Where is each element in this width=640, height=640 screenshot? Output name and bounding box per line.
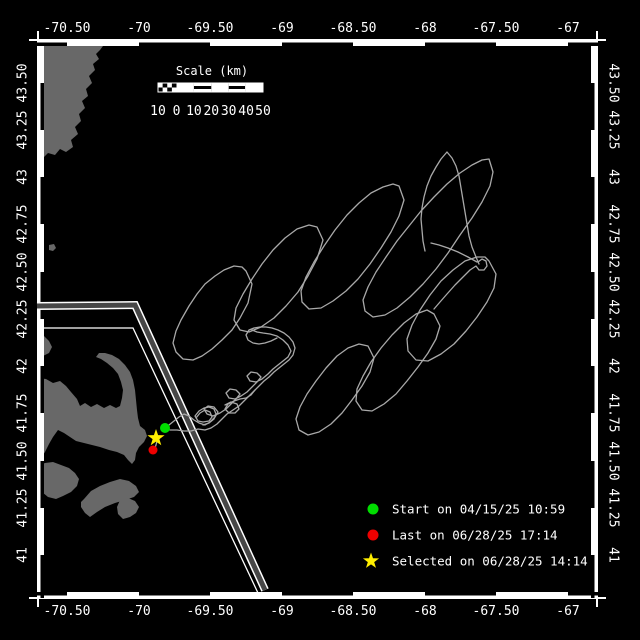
track-line (407, 257, 496, 361)
lat-tick-label: 42.75 (16, 204, 31, 243)
lat-tick-label: 43.50 (16, 63, 31, 102)
lat-tick-label: 42.75 (606, 204, 621, 243)
lat-tick-label: 43.50 (606, 63, 621, 102)
track-line (421, 152, 479, 264)
lat-tick-label: 42 (16, 358, 31, 374)
lon-tick-label: -70.50 (44, 21, 91, 36)
lon-tick-label: -70 (127, 604, 150, 619)
scale-bar-checker-cell (172, 88, 177, 93)
lon-tick-label: -68 (413, 21, 436, 36)
land-polygon (37, 46, 103, 160)
last-point-marker[interactable] (149, 446, 158, 455)
zebra-segment (282, 43, 353, 47)
lat-tick-label: 43.25 (606, 110, 621, 149)
zebra-segment (425, 43, 496, 47)
zebra-segment (41, 177, 45, 224)
lon-tick-label: -69 (270, 604, 293, 619)
lat-tick-label: 41.25 (16, 488, 31, 527)
lat-tick-label: 42.25 (606, 299, 621, 338)
lon-tick-label: -69 (270, 21, 293, 36)
zebra-segment (591, 177, 595, 224)
scale-bar-solid-segment (245, 83, 263, 92)
zebra-segment (591, 555, 595, 598)
zebra-segment (41, 83, 45, 130)
legend-marker-circle (368, 504, 379, 515)
lon-tick-label: -68.50 (330, 21, 377, 36)
lon-tick-label: -70 (127, 21, 150, 36)
map-graphics (0, 0, 640, 640)
lat-tick-label: 43 (16, 169, 31, 185)
scale-bar-number: 30 (221, 104, 237, 119)
track-line (296, 344, 374, 435)
scale-bar-solid-segment (211, 83, 228, 92)
zebra-segment (41, 366, 45, 413)
lat-tick-label: 41.75 (16, 393, 31, 432)
lat-tick-label: 42.25 (16, 299, 31, 338)
lat-tick-label: 43.25 (16, 110, 31, 149)
zebra-segment (591, 461, 595, 508)
track-line (301, 184, 404, 309)
scale-bar-number: 40 (238, 104, 254, 119)
zebra-segment (41, 555, 45, 598)
track-line (434, 259, 487, 309)
scale-bar-striped-segment (194, 83, 211, 86)
zebra-segment (41, 272, 45, 319)
scale-bar-number: 10 (186, 104, 202, 119)
scale-bar-striped-segment (229, 83, 245, 86)
legend-marker-star (363, 553, 379, 568)
scale-bar-striped-segment (229, 89, 245, 92)
lon-tick-label: -67 (556, 604, 579, 619)
lon-tick-label: -68.50 (330, 604, 377, 619)
lon-tick-label: -69.50 (187, 604, 234, 619)
lat-tick-label: 41.50 (606, 441, 621, 480)
zebra-segment (37, 43, 67, 47)
land-polygon (37, 353, 147, 464)
lat-tick-label: 42.50 (606, 252, 621, 291)
zebra-segment (591, 366, 595, 413)
lat-tick-label: 42.50 (16, 252, 31, 291)
zebra-segment (591, 83, 595, 130)
scale-bar-number: 50 (255, 104, 271, 119)
scale-bar-number: 0 (173, 104, 181, 119)
zebra-segment (139, 592, 210, 596)
scale-bar-checker-cell (158, 83, 163, 88)
zebra-segment (568, 43, 598, 47)
lon-tick-label: -67 (556, 21, 579, 36)
lat-tick-label: 41.25 (606, 488, 621, 527)
zebra-segment (282, 592, 353, 596)
lon-tick-label: -68 (413, 604, 436, 619)
zebra-segment (591, 272, 595, 319)
legend-marker-circle (368, 530, 379, 541)
scale-bar-striped-segment (194, 89, 211, 92)
lat-tick-label: 41.75 (606, 393, 621, 432)
lat-tick-label: 41 (606, 547, 621, 563)
lon-tick-label: -70.50 (44, 604, 91, 619)
zebra-segment (425, 592, 496, 596)
scale-bar-number: 20 (203, 104, 219, 119)
scale-bar-checker-cell (163, 88, 168, 93)
scale-bar-number: 10 (150, 104, 166, 119)
scale-bar-checker-cell (167, 83, 172, 88)
legend-selected-label: Selected on 06/28/25 14:14 (392, 554, 588, 569)
zebra-segment (139, 43, 210, 47)
map-canvas[interactable]: -70.50-70-69.50-69-68.50-68-67.50-67 -70… (0, 0, 640, 640)
legend-start-label: Start on 04/15/25 10:59 (392, 502, 565, 517)
land-polygon (49, 244, 56, 251)
lat-tick-label: 42 (606, 358, 621, 374)
scale-bar-solid-segment (177, 83, 194, 92)
lat-tick-label: 41 (16, 547, 31, 563)
track-line (173, 266, 252, 360)
start-point-marker[interactable] (160, 423, 170, 433)
lon-tick-label: -67.50 (473, 21, 520, 36)
lon-tick-label: -69.50 (187, 21, 234, 36)
scale-bar-title: Scale (km) (176, 64, 248, 78)
track-line (234, 225, 323, 332)
lane-inner-line (37, 328, 258, 593)
legend-last-label: Last on 06/28/25 17:14 (392, 528, 558, 543)
lon-tick-label: -67.50 (473, 604, 520, 619)
lat-tick-label: 43 (606, 169, 621, 185)
land-polygon (117, 498, 139, 519)
lat-tick-label: 41.50 (16, 441, 31, 480)
zebra-segment (41, 461, 45, 508)
